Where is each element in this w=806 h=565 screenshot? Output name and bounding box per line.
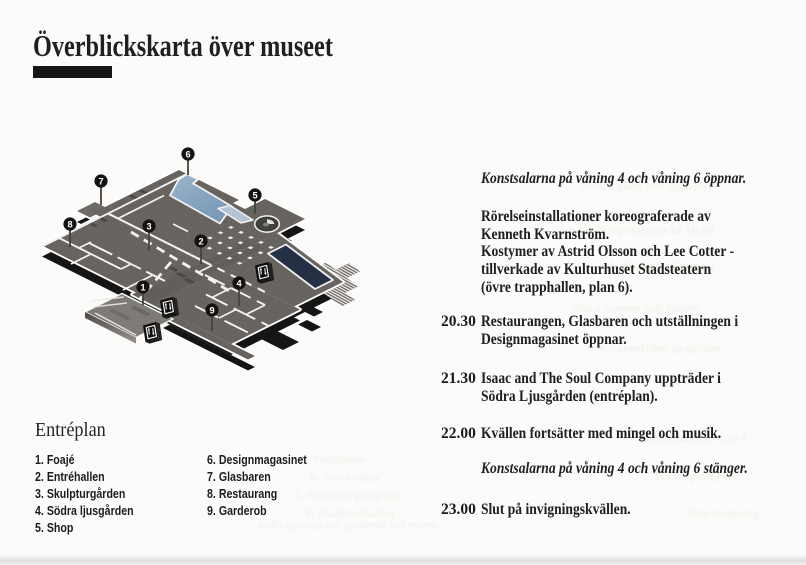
svg-text:6: 6 <box>185 149 190 159</box>
svg-text:4: 4 <box>236 278 242 288</box>
svg-text:1: 1 <box>140 282 145 292</box>
svg-text:3: 3 <box>146 221 151 231</box>
svg-text:8: 8 <box>67 219 72 229</box>
svg-text:9: 9 <box>209 305 214 315</box>
svg-text:7: 7 <box>98 176 103 186</box>
svg-text:2: 2 <box>198 236 203 246</box>
svg-text:5: 5 <box>252 190 257 200</box>
